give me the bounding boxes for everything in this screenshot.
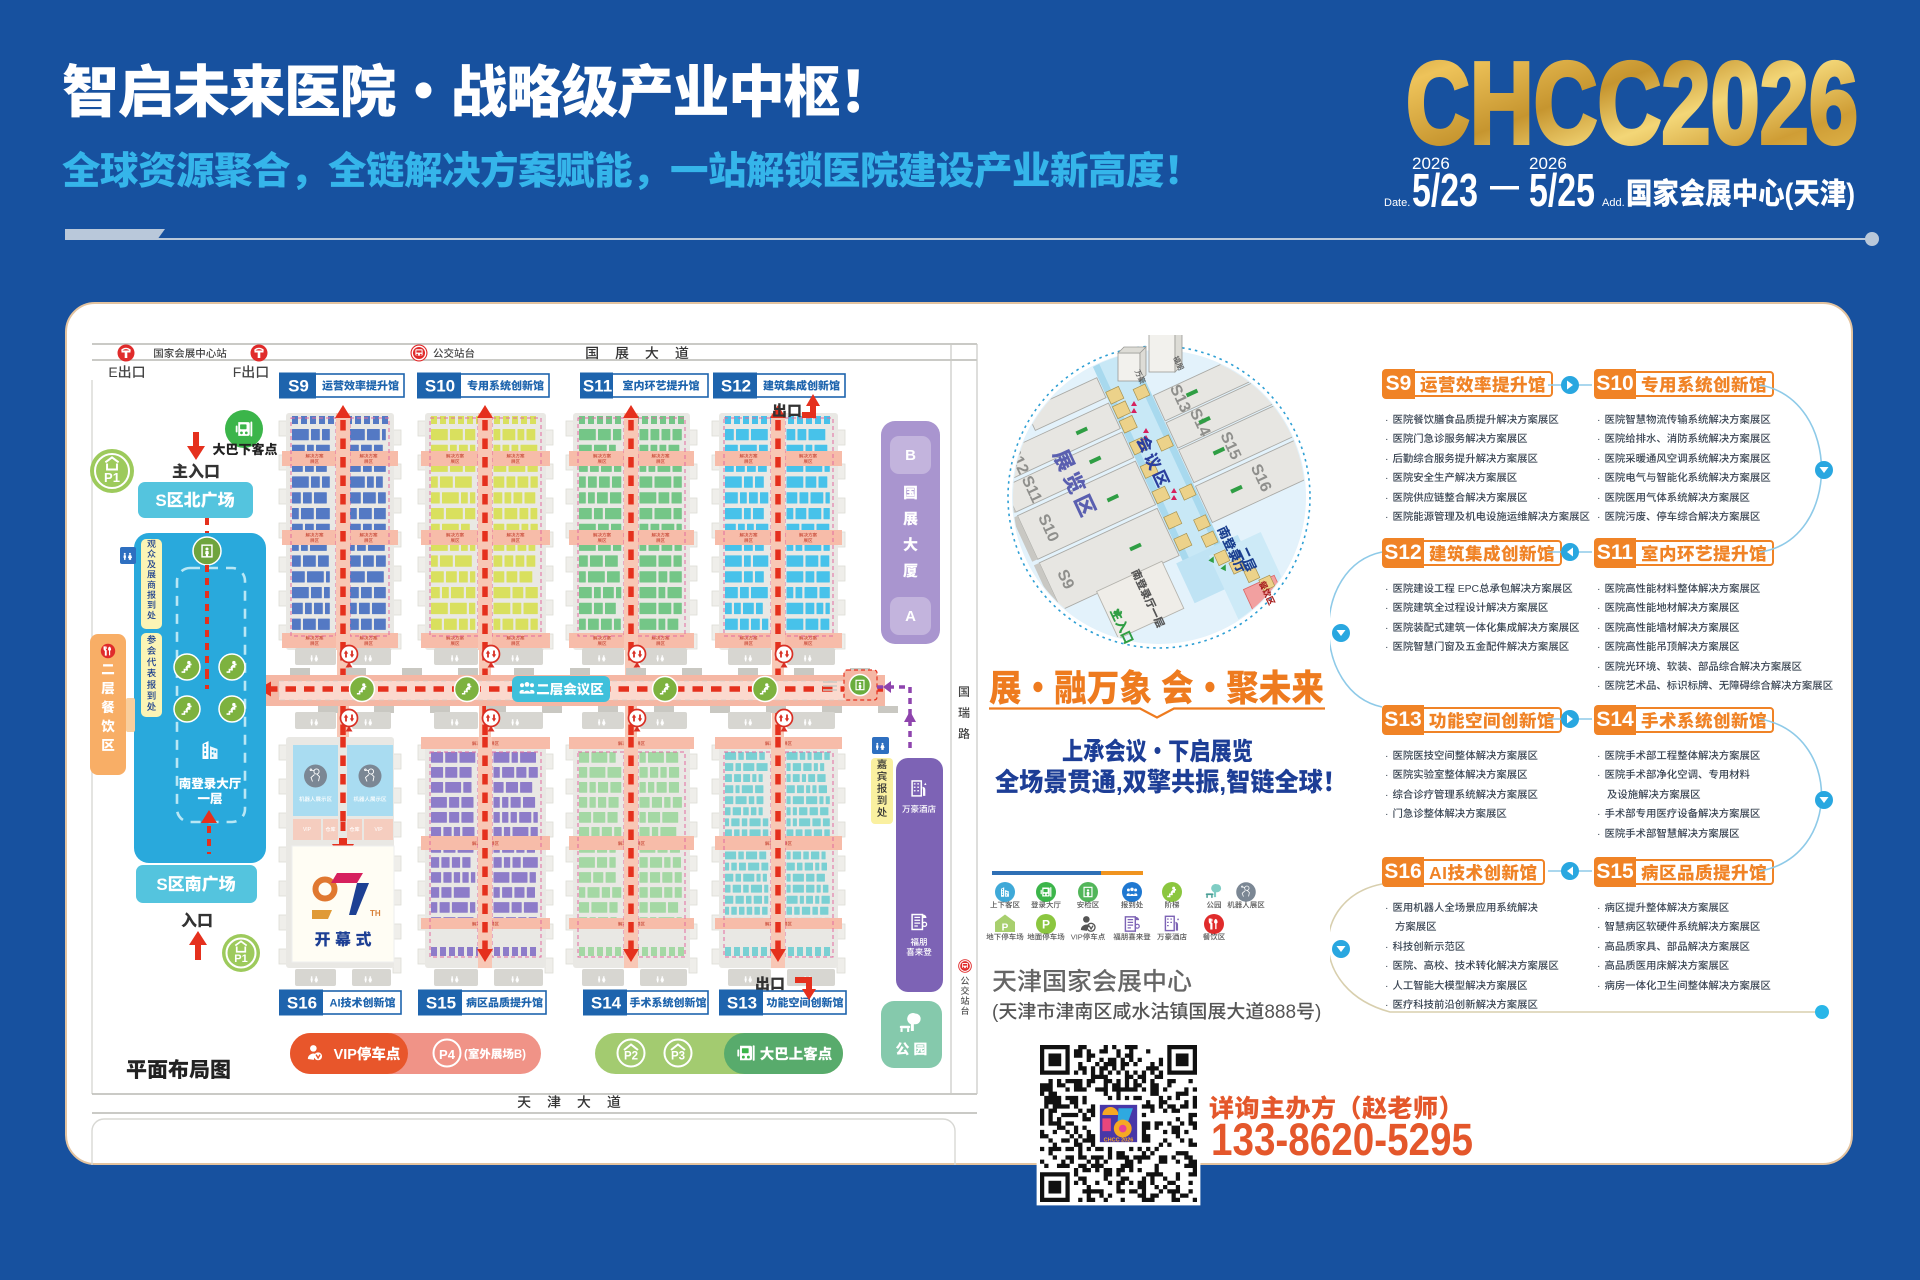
- svg-text:展区: 展区: [656, 641, 665, 647]
- svg-text:VIP停车点: VIP停车点: [334, 1043, 401, 1064]
- svg-text:地面停车场: 地面停车场: [1027, 932, 1065, 943]
- svg-text:机器人展区: 机器人展区: [1227, 900, 1265, 911]
- svg-text:展区: 展区: [310, 459, 319, 465]
- svg-text:公交站台: 公交站台: [960, 974, 969, 1017]
- svg-text:(室外展场B): (室外展场B): [464, 1046, 526, 1062]
- svg-text:S11: S11: [583, 372, 612, 397]
- svg-text:地下停车场: 地下停车场: [986, 932, 1024, 943]
- svg-text:P4: P4: [439, 1044, 456, 1063]
- svg-text:CHCC 2026: CHCC 2026: [1104, 1136, 1134, 1144]
- svg-text:展区: 展区: [598, 459, 607, 465]
- svg-text:P2: P2: [624, 1048, 638, 1064]
- svg-text:A: A: [905, 605, 916, 626]
- svg-text:B: B: [905, 444, 916, 465]
- svg-text:嘉宾报到处: 嘉宾报到处: [877, 757, 888, 820]
- svg-text:S12: S12: [721, 372, 751, 397]
- svg-text:功能空间创新馆: 功能空间创新馆: [767, 995, 844, 1011]
- svg-text:入口: 入口: [181, 907, 213, 931]
- svg-text:国 展 大 道: 国 展 大 道: [585, 343, 695, 363]
- svg-text:展区: 展区: [598, 538, 607, 544]
- svg-text:上下客区: 上下客区: [990, 900, 1020, 911]
- svg-text:展区: 展区: [744, 459, 753, 465]
- svg-text:S区南广场: S区南广场: [156, 870, 235, 895]
- svg-text:展区: 展区: [364, 538, 373, 544]
- svg-text:展区: 展区: [310, 538, 319, 544]
- svg-text:万豪酒店: 万豪酒店: [902, 803, 937, 815]
- svg-text:133-8620-5295: 133-8620-5295: [1211, 1115, 1473, 1165]
- svg-text:AI技术创新馆: AI技术创新馆: [330, 995, 396, 1011]
- svg-text:一层: 一层: [197, 788, 222, 807]
- svg-text:福朋喜来登: 福朋喜来登: [1113, 932, 1151, 943]
- svg-text:运营效率提升馆: 运营效率提升馆: [322, 378, 399, 394]
- svg-text:安检区: 安检区: [1077, 900, 1100, 911]
- svg-text:VIP停车点: VIP停车点: [1071, 932, 1106, 943]
- svg-text:阶梯: 阶梯: [1165, 900, 1181, 911]
- svg-text:出口: 出口: [755, 973, 785, 994]
- svg-text:展区: 展区: [656, 459, 665, 465]
- svg-text:机器人展示区: 机器人展示区: [299, 795, 333, 803]
- svg-text:展区: 展区: [744, 538, 753, 544]
- svg-text:S14: S14: [591, 989, 622, 1014]
- svg-text:国瑞路: 国瑞路: [958, 683, 970, 742]
- svg-text:专用系统创新馆: 专用系统创新馆: [467, 378, 544, 394]
- svg-text:仓库: 仓库: [349, 826, 359, 833]
- svg-text:病区品质提升馆: 病区品质提升馆: [466, 995, 543, 1011]
- svg-text:二层会议区: 二层会议区: [536, 678, 604, 698]
- svg-text:公交站台: 公交站台: [433, 346, 475, 361]
- svg-text:E出口: E出口: [108, 362, 145, 382]
- svg-text:餐饮区: 餐饮区: [1203, 932, 1226, 943]
- svg-text:VIP: VIP: [303, 826, 312, 833]
- svg-text:参会代表报到处: 参会代表报到处: [147, 632, 157, 713]
- svg-text:观众及展商报到处: 观众及展商报到处: [147, 537, 156, 621]
- svg-text:S16: S16: [287, 989, 317, 1014]
- svg-text:展区: 展区: [511, 459, 520, 465]
- svg-text:报到处: 报到处: [1121, 900, 1144, 911]
- svg-text:TH: TH: [370, 908, 381, 919]
- svg-text:展区: 展区: [656, 538, 665, 544]
- svg-text:P1: P1: [104, 467, 120, 486]
- svg-text:P: P: [1042, 916, 1050, 933]
- svg-text:展区: 展区: [511, 538, 520, 544]
- svg-text:公园: 公园: [1207, 900, 1222, 911]
- svg-text:展区: 展区: [598, 641, 607, 647]
- svg-text:展区: 展区: [511, 641, 520, 647]
- svg-text:展区: 展区: [364, 641, 373, 647]
- svg-text:展区: 展区: [744, 641, 753, 647]
- svg-text:大巴上客点: 大巴上客点: [760, 1043, 833, 1064]
- svg-text:S区北广场: S区北广场: [155, 486, 234, 511]
- svg-text:S15: S15: [426, 989, 456, 1014]
- svg-text:主入口: 主入口: [172, 458, 220, 482]
- svg-text:展区: 展区: [804, 641, 813, 647]
- svg-text:平面布局图: 平面布局图: [126, 1054, 231, 1084]
- svg-text:仓库: 仓库: [325, 826, 335, 833]
- svg-text:展·融万象 会·聚未来: 展·融万象 会·聚未来: [989, 658, 1324, 712]
- svg-text:公 园: 公 园: [896, 1039, 928, 1059]
- svg-text:二层餐饮区: 二层餐饮区: [101, 658, 115, 754]
- svg-text:开 幕 式: 开 幕 式: [315, 926, 372, 950]
- svg-text:展区: 展区: [451, 641, 460, 647]
- svg-text:手术系统创新馆: 手术系统创新馆: [630, 995, 707, 1011]
- svg-text:出口: 出口: [772, 400, 802, 421]
- svg-text:展区: 展区: [804, 459, 813, 465]
- svg-text:展区: 展区: [804, 538, 813, 544]
- svg-text:展区: 展区: [364, 459, 373, 465]
- svg-text:万豪酒店: 万豪酒店: [1157, 932, 1187, 943]
- svg-text:机器人展示区: 机器人展示区: [353, 795, 387, 803]
- svg-text:VIP: VIP: [374, 826, 383, 833]
- svg-text:大巴下客点: 大巴下客点: [212, 439, 277, 458]
- svg-text:室内环艺提升馆: 室内环艺提升馆: [623, 378, 700, 394]
- svg-text:S9: S9: [288, 372, 309, 397]
- svg-text:建筑集成创新馆: 建筑集成创新馆: [763, 378, 840, 394]
- svg-text:展区: 展区: [310, 641, 319, 647]
- svg-text:P1: P1: [234, 950, 247, 966]
- svg-text:展区: 展区: [451, 538, 460, 544]
- svg-text:F出口: F出口: [233, 362, 270, 382]
- svg-text:S13: S13: [727, 989, 757, 1014]
- svg-text:天 津 大 道: 天 津 大 道: [517, 1092, 627, 1112]
- svg-text:全场景贯通,双擎共振,智链全球！: 全场景贯通,双擎共振,智链全球！: [995, 762, 1347, 799]
- svg-text:S10: S10: [425, 372, 455, 397]
- svg-text:展区: 展区: [451, 459, 460, 465]
- svg-text:P3: P3: [671, 1048, 685, 1064]
- svg-text:喜来登: 喜来登: [906, 946, 932, 958]
- svg-text:登录大厅: 登录大厅: [1031, 900, 1061, 911]
- svg-text:国家会展中心站: 国家会展中心站: [153, 346, 227, 361]
